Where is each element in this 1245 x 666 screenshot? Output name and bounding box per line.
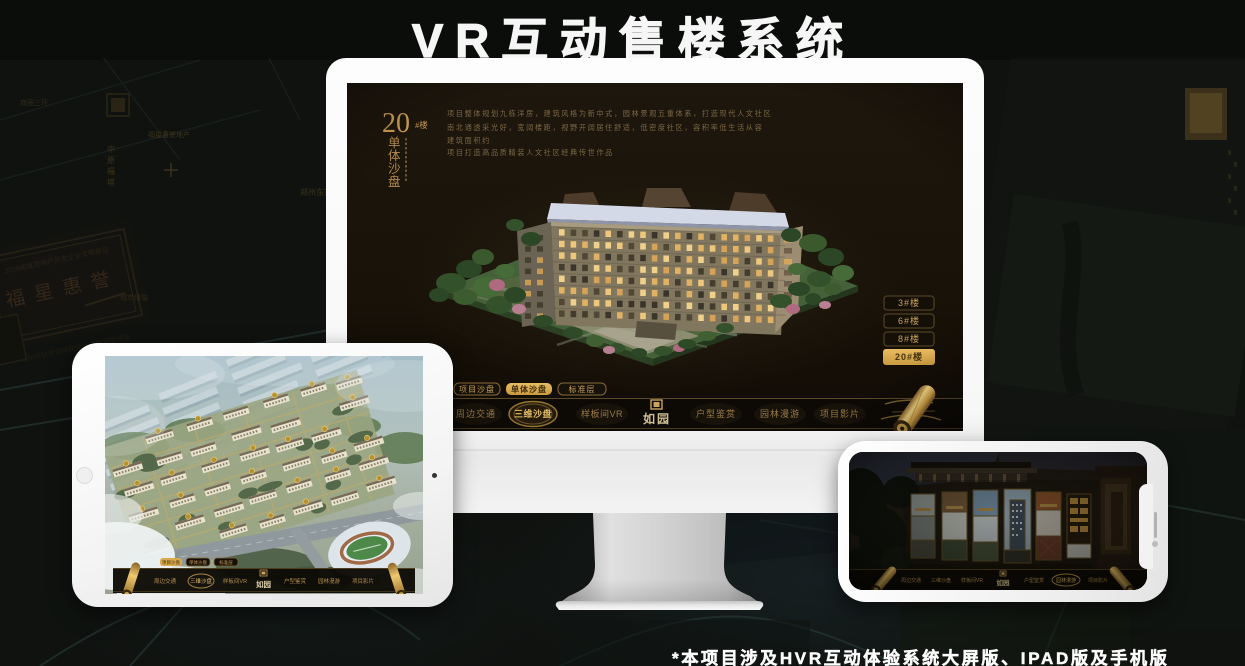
svg-text:城市绿轴: 城市绿轴 bbox=[120, 293, 148, 302]
svg-text:三维沙盘: 三维沙盘 bbox=[190, 577, 213, 585]
svg-text:标准层: 标准层 bbox=[219, 559, 233, 566]
svg-text:福: 福 bbox=[107, 167, 115, 176]
svg-text:中: 中 bbox=[107, 144, 115, 154]
svg-text:如园: 如园 bbox=[256, 579, 271, 589]
svg-text:原: 原 bbox=[107, 156, 115, 165]
svg-text:园林漫游: 园林漫游 bbox=[318, 577, 341, 585]
svg-text:样板间VR: 样板间VR bbox=[223, 577, 247, 585]
svg-text:项目沙盘: 项目沙盘 bbox=[162, 559, 180, 566]
svg-text:福星惠誉地产: 福星惠誉地产 bbox=[148, 130, 190, 139]
svg-text:单体沙盘: 单体沙盘 bbox=[189, 559, 207, 566]
svg-text:周边交通: 周边交通 bbox=[154, 577, 177, 585]
svg-text:户型鉴赏: 户型鉴赏 bbox=[284, 577, 307, 585]
svg-text:塔: 塔 bbox=[107, 177, 115, 187]
svg-text:项目影片: 项目影片 bbox=[352, 577, 374, 585]
svg-text:商圈三环: 商圈三环 bbox=[20, 98, 48, 107]
